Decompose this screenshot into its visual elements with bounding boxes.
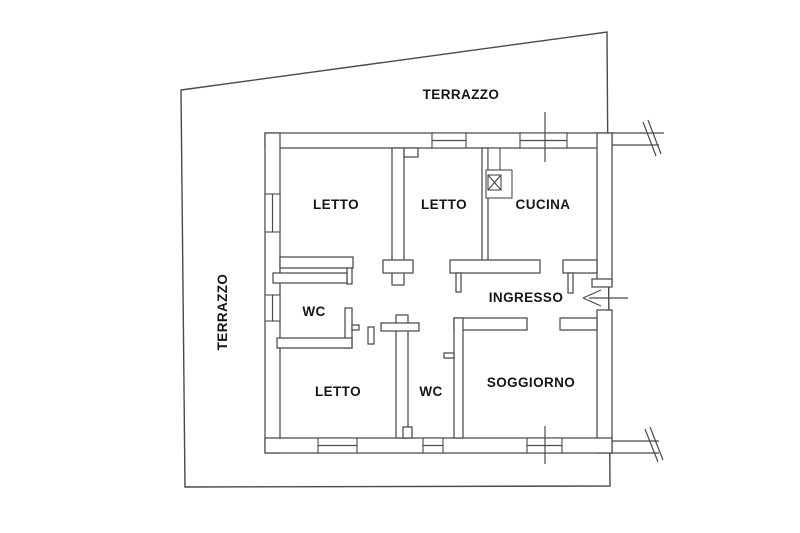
wall-segment (396, 315, 408, 438)
door-jamb (352, 325, 359, 330)
wall-segment (383, 260, 413, 273)
wall-segment (273, 273, 347, 283)
window-symbol (318, 438, 357, 453)
door-jamb (456, 273, 461, 292)
break-hatch (645, 429, 658, 462)
room-label-entrance-hall: INGRESSO (489, 290, 563, 305)
wall-segment (450, 260, 540, 273)
wall-segment (563, 260, 597, 273)
door-jamb (568, 273, 573, 293)
room-label-bedroom-nw: LETTO (313, 197, 359, 212)
room-label-living-room: SOGGIORNO (487, 375, 575, 390)
window-symbol (527, 426, 562, 464)
window-symbol (265, 194, 280, 232)
break-hatch (650, 427, 663, 460)
door-jamb (347, 268, 352, 284)
floorplan-svg: TERRAZZO TERRAZZO LETTO LETTO CUCINA WC … (0, 0, 800, 533)
window-symbol (432, 133, 466, 148)
window-symbol (520, 112, 567, 162)
floorplan-image: TERRAZZO TERRAZZO LETTO LETTO CUCINA WC … (0, 0, 800, 533)
room-label-bedroom-sw: LETTO (315, 384, 361, 399)
duct-notch (403, 427, 412, 438)
entrance-door-jamb (592, 279, 612, 287)
door-jamb (368, 327, 374, 344)
wall-segment (277, 338, 352, 348)
window-symbols (265, 112, 567, 464)
room-label-bathroom-mid: WC (302, 304, 325, 319)
door-jamb (444, 353, 454, 358)
entrance-arrow-icon (583, 290, 628, 306)
break-hatch (648, 120, 661, 154)
room-label-kitchen: CUCINA (516, 197, 571, 212)
wall-segment (597, 310, 612, 453)
room-label-terrace-left: TERRAZZO (215, 274, 230, 351)
window-symbol (423, 438, 443, 453)
wall-segment (404, 148, 418, 157)
wall-segment (597, 133, 612, 285)
wall-segment (482, 148, 488, 262)
wall-segment (454, 318, 527, 330)
wall-segment (381, 323, 419, 331)
room-label-terrace-top: TERRAZZO (423, 87, 500, 102)
room-label-bedroom-n: LETTO (421, 197, 467, 212)
break-hatch (643, 122, 656, 156)
wall-segment (454, 318, 463, 438)
wall-segment (280, 257, 353, 268)
flue-box-icon (486, 148, 512, 198)
wall-segment (560, 318, 597, 330)
wall-break-marks (612, 120, 664, 462)
wall-segment (265, 133, 280, 453)
window-symbol (265, 295, 280, 321)
room-label-bathroom-s: WC (419, 384, 442, 399)
